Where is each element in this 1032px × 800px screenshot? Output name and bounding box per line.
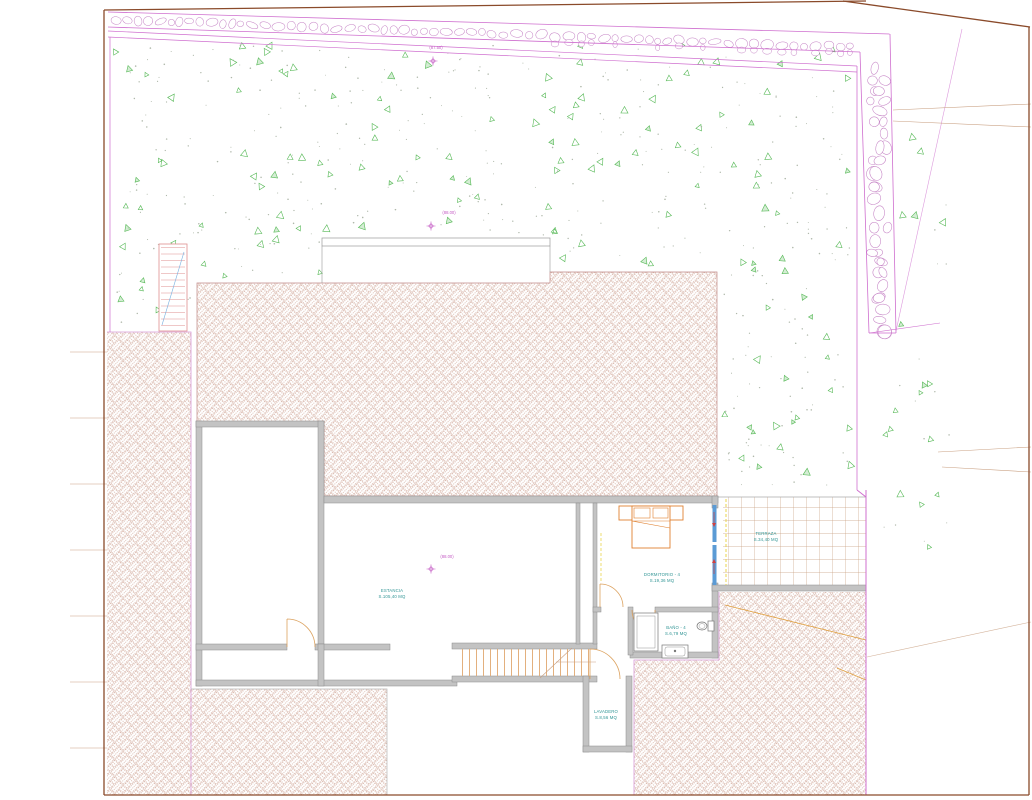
vegetation-triangle-icon [255, 57, 263, 65]
garden-dot [253, 46, 254, 47]
vegetation-triangle-icon [695, 183, 700, 188]
garden-dot [600, 223, 601, 224]
garden-dot [338, 106, 339, 107]
garden-dot [663, 246, 664, 247]
garden-dot [841, 154, 842, 155]
garden-dot [259, 89, 261, 91]
garden-dot [134, 98, 135, 99]
vegetation-triangle-icon [825, 355, 830, 360]
garden-dot [661, 149, 662, 150]
garden-dot [337, 133, 338, 134]
vegetation-triangle-icon [330, 92, 337, 98]
stone [380, 25, 389, 36]
garden-dot [364, 144, 365, 145]
garden-dot [234, 248, 235, 249]
garden-dot [771, 182, 772, 183]
stone [499, 32, 508, 38]
garden-dot [171, 51, 172, 52]
garden-dot [685, 150, 686, 151]
garden-dot [459, 206, 461, 208]
garden-dot [772, 299, 774, 301]
garden-dot [478, 70, 479, 71]
garden-dot [780, 378, 781, 379]
garden-dot [934, 229, 936, 231]
garden-dot [766, 283, 767, 284]
garden-dot [461, 116, 462, 117]
garden-dot [281, 50, 282, 51]
vegetation-triangle-icon [698, 58, 705, 64]
vegetation-triangle-icon [899, 211, 907, 218]
garden-dot [146, 126, 147, 127]
garden-dot [543, 234, 544, 235]
pillow-icon [653, 508, 668, 518]
garden-dot [153, 248, 155, 250]
garden-dot [769, 445, 770, 446]
stone [877, 74, 892, 87]
garden-dot [749, 466, 750, 467]
garden-dot [121, 321, 123, 323]
garden-dot [353, 222, 355, 224]
garden-dot [797, 165, 798, 166]
exterior-stair [159, 244, 187, 331]
garden-dot [570, 251, 571, 252]
garden-dot [147, 59, 148, 60]
vegetation-triangle-icon [887, 426, 893, 432]
elevation-marker-icon [427, 222, 436, 231]
stone [389, 25, 399, 35]
garden-dot [413, 190, 414, 191]
vegetation-triangle-icon [397, 175, 403, 181]
vegetation-triangle-icon [271, 171, 279, 178]
vegetation-triangle-icon [241, 149, 249, 157]
garden-dot [832, 253, 833, 254]
vegetation-triangle-icon [641, 256, 650, 264]
stone [873, 316, 886, 324]
garden-dot [557, 170, 558, 171]
garden-dot [725, 411, 726, 412]
garden-dot [806, 123, 807, 124]
garden-dot [193, 232, 194, 233]
right-witness-line [867, 622, 1031, 657]
garden-dot [577, 210, 578, 211]
garden-dot [722, 87, 723, 88]
garden-dot [748, 346, 749, 347]
stone [219, 19, 227, 29]
garden-dot [440, 224, 441, 225]
garden-dot [150, 47, 152, 49]
vegetation-triangle-icon [474, 193, 480, 199]
garden-dot [640, 79, 641, 80]
garden-dot [345, 123, 347, 125]
garden-dot [475, 88, 476, 89]
southeast-paving [634, 592, 866, 795]
vegetation-triangle-icon [770, 420, 780, 430]
stone [846, 43, 854, 50]
stone [454, 28, 465, 36]
vegetation-triangle-icon [844, 168, 850, 174]
garden-dot [749, 333, 750, 334]
garden-dot [466, 176, 467, 177]
garden-dot [217, 161, 218, 162]
garden-dot [623, 132, 624, 133]
wall-segment [315, 644, 390, 650]
vegetation-triangle-icon [445, 216, 453, 223]
garden-dot [748, 445, 749, 446]
garden-dot [327, 159, 329, 161]
garden-dot [188, 145, 189, 146]
garden-dot [137, 313, 138, 314]
garden-dot [638, 49, 639, 50]
stone [875, 304, 890, 315]
stone [866, 191, 883, 206]
wall-segment [593, 503, 597, 644]
vegetation-triangle-icon [317, 269, 323, 274]
garden-dot [275, 136, 276, 137]
garden-dot [335, 188, 337, 190]
vegetation-triangle-icon [649, 93, 659, 102]
garden-dot [790, 396, 791, 397]
garden-dot [351, 102, 352, 103]
garden-dot [147, 239, 148, 240]
garden-dot [143, 299, 144, 300]
wall-segment [583, 746, 632, 752]
vegetation-triangle-icon [530, 118, 539, 127]
vegetation-triangle-icon [645, 125, 652, 131]
garden-dot [518, 232, 519, 233]
garden-dot [225, 212, 227, 214]
stone [708, 38, 721, 45]
vegetation-triangle-icon [845, 424, 853, 431]
vegetation-triangle-icon [369, 122, 378, 130]
vegetation-triangle-icon [809, 313, 815, 319]
garden-dot [349, 90, 350, 91]
vegetation-triangle-icon [323, 224, 331, 231]
vegetation-triangle-icon [279, 68, 285, 74]
garden-dot [403, 183, 404, 184]
garden-dot [400, 90, 401, 91]
vegetation-triangle-icon [567, 112, 575, 120]
vegetation-triangle-icon [917, 147, 924, 154]
vegetation-triangle-icon [317, 160, 323, 166]
garden-dot [486, 150, 487, 151]
garden-dot [200, 72, 201, 73]
vegetation-triangle-icon [111, 47, 119, 55]
garden-dot [406, 139, 407, 140]
garden-dot [772, 141, 773, 142]
garden-dot [843, 452, 844, 453]
garden-dot [919, 358, 920, 359]
garden-dot [492, 45, 494, 47]
vegetation-triangle-icon [236, 87, 241, 92]
stone [824, 41, 834, 49]
garden-dot [416, 182, 417, 183]
stone [245, 20, 259, 30]
garden-dot [164, 64, 166, 66]
elevation-label: (87.50) [429, 45, 443, 50]
garden-dot [832, 106, 833, 107]
garden-dot [694, 144, 695, 145]
garden-dot [130, 72, 131, 73]
garden-dot [792, 247, 794, 249]
garden-dot [567, 238, 568, 239]
vegetation-triangle-icon [753, 182, 759, 188]
main-roof-hatch [197, 272, 717, 496]
garden-dot [816, 96, 817, 97]
vegetation-triangle-icon [578, 93, 587, 102]
stone [154, 16, 167, 26]
garden-dot [728, 459, 729, 460]
stone [411, 29, 418, 36]
vegetation-triangle-icon [755, 463, 762, 470]
stair-treads [457, 649, 593, 676]
garden-dot [626, 69, 628, 71]
vegetation-triangle-icon [761, 204, 769, 211]
garden-dot [797, 222, 798, 223]
wall-segment [452, 676, 597, 682]
vegetation-triangle-icon [414, 154, 420, 160]
vegetation-triangle-icon [257, 240, 265, 248]
stone [510, 29, 523, 38]
garden-dot [212, 49, 213, 50]
garden-dot [764, 226, 765, 227]
garden-dot [487, 163, 488, 164]
stone [133, 16, 142, 27]
stone [344, 23, 356, 32]
vegetation-triangle-icon [543, 72, 552, 81]
stone [613, 42, 617, 48]
garden-dot [823, 138, 825, 140]
garden-dot [812, 77, 813, 78]
parapet-wall [322, 238, 550, 246]
garden-dot [488, 95, 489, 96]
garden-dot [493, 161, 494, 162]
garden-dot [286, 65, 288, 67]
garden-dot [230, 151, 231, 152]
garden-dot [581, 234, 582, 235]
garden-dot [116, 291, 118, 293]
elevation-marker-icon [427, 565, 436, 574]
garden-dot [741, 484, 742, 485]
garden-dot [489, 97, 490, 98]
site-plan-drawing: (87.50) (88.00) (88.00) ESTANCIA S.105,4… [0, 0, 1032, 800]
garden-dot [665, 196, 666, 197]
cad-floor-plan-sheet: (87.50) (88.00) (88.00) ESTANCIA S.105,4… [0, 0, 1032, 800]
garden-dot [359, 138, 360, 139]
vegetation-triangle-icon [120, 242, 128, 250]
garden-dot [603, 119, 604, 120]
wall-segment [452, 643, 597, 649]
garden-dot [757, 270, 758, 271]
vegetation-triangle-icon [168, 92, 178, 101]
boundary-line [896, 29, 962, 331]
garden-dot [121, 273, 122, 274]
garden-dot [362, 217, 364, 219]
garden-dot [453, 70, 454, 71]
vegetation-triangle-icon [927, 435, 934, 441]
room-area: S.105,40 MQ [379, 594, 406, 599]
garden-dot [899, 385, 900, 386]
vegetation-triangle-icon [572, 102, 579, 108]
stone [286, 21, 296, 31]
garden-dot [384, 69, 385, 70]
vegetation-triangle-icon [552, 166, 560, 174]
window-divider [712, 542, 718, 545]
wall-segment [196, 644, 287, 650]
garden-dot [573, 247, 574, 248]
garden-dot [701, 126, 702, 127]
vegetation-triangle-icon [117, 296, 124, 302]
garden-dot [299, 93, 300, 94]
garden-dot [213, 195, 214, 196]
garden-dot [141, 120, 143, 122]
garden-dot [790, 198, 791, 199]
stone [174, 16, 184, 27]
vegetation-triangle-icon [803, 468, 811, 475]
garden-dot [260, 177, 261, 178]
vegetation-triangle-icon [571, 138, 579, 145]
vegetation-triangle-icon [920, 381, 928, 388]
garden-dot [408, 120, 409, 121]
garden-dot [658, 84, 659, 85]
vegetation-triangle-icon [465, 177, 474, 186]
garden-dot [710, 67, 711, 68]
vegetation-triangle-icon [387, 180, 393, 185]
garden-dot [501, 163, 502, 164]
garden-dot [479, 66, 480, 67]
garden-dot [198, 223, 200, 225]
room-name: TERRAZA [755, 531, 776, 536]
garden-dot [135, 65, 137, 67]
wall-segment [576, 503, 580, 644]
garden-dot [673, 245, 674, 246]
garden-dot [269, 243, 270, 244]
garden-dot [825, 207, 826, 208]
vegetation-triangle-icon [911, 211, 920, 219]
stone [168, 19, 175, 26]
garden-dot [812, 404, 813, 405]
garden-dot [535, 187, 536, 188]
garden-dot [274, 243, 276, 245]
stone [579, 41, 585, 47]
garden-dot [945, 204, 946, 205]
toilet-bowl-icon [699, 624, 705, 629]
garden-dot [819, 253, 821, 255]
vegetation-triangle-icon [139, 286, 144, 291]
garden-dot [166, 101, 167, 102]
garden-dot [783, 452, 784, 453]
garden-dot [396, 84, 397, 85]
garden-dot [832, 112, 833, 113]
garden-dot [268, 214, 269, 215]
shower-box-inner [637, 616, 655, 648]
garden-dot [781, 425, 782, 426]
garden-dot [305, 105, 306, 106]
stone [867, 75, 878, 85]
garden-dot [157, 81, 158, 82]
garden-dot [811, 409, 813, 411]
vegetation-triangle-icon [632, 149, 639, 155]
stone [398, 24, 410, 35]
vegetation-triangle-icon [558, 157, 564, 163]
stone [836, 42, 846, 51]
garden-dot [806, 288, 807, 289]
vegetation-triangle-icon [684, 69, 691, 75]
vegetation-triangle-icon [446, 153, 453, 160]
garden-dot [846, 227, 847, 228]
stone [621, 36, 633, 43]
garden-dot [307, 200, 308, 201]
garden-dot [308, 247, 309, 248]
wall-segment [324, 496, 718, 503]
garden-dot [239, 64, 240, 65]
stone [195, 17, 204, 27]
garden-dot [138, 81, 139, 82]
garden-dot [748, 439, 749, 440]
bed-furniture [619, 506, 683, 548]
wall-segment [712, 583, 718, 658]
room-area: S.8,56 MQ [595, 715, 617, 720]
garden-dot [241, 266, 242, 267]
vegetation-triangle-icon [782, 267, 789, 273]
garden-dot [190, 138, 191, 139]
garden-dot [805, 357, 806, 358]
stone [700, 44, 705, 50]
stone [654, 37, 662, 45]
vegetation-triangle-icon [739, 454, 747, 462]
stone [308, 21, 319, 32]
garden-dot [802, 328, 803, 329]
garden-dot [395, 209, 397, 211]
garden-dot [703, 166, 704, 167]
vegetation-triangle-icon [489, 116, 495, 122]
wall-segment [593, 607, 601, 612]
garden-dot [128, 228, 129, 229]
garden-dot [478, 201, 479, 202]
garden-dot [847, 254, 848, 255]
vegetation-triangle-icon [939, 217, 948, 226]
garden-dot [700, 172, 701, 173]
garden-dot [319, 146, 320, 147]
garden-dot [597, 153, 598, 154]
elevation-label: (88.00) [442, 210, 456, 215]
garden-dot [753, 247, 754, 248]
stone [478, 28, 485, 36]
garden-dot [808, 222, 809, 223]
vegetation-triangle-icon [134, 177, 140, 182]
garden-dot [826, 484, 827, 485]
border-top [104, 1, 866, 10]
vegetation-triangle-icon [199, 222, 204, 227]
garden-dot [483, 220, 484, 221]
stone [868, 116, 880, 128]
stone [800, 43, 807, 50]
stone [237, 21, 244, 27]
garden-dot [742, 315, 744, 317]
garden-dot [318, 241, 319, 242]
garden-dot [552, 147, 554, 149]
wall-segment [583, 676, 589, 752]
garden-dot [502, 219, 503, 220]
vegetation-triangle-icon [283, 70, 290, 77]
garden-dot [728, 453, 729, 454]
vegetation-triangle-icon [777, 59, 785, 66]
vegetation-triangle-icon [926, 544, 932, 550]
garden-dot [816, 189, 817, 190]
garden-dot [658, 211, 660, 213]
garden-dot [775, 95, 776, 96]
garden-dot [475, 130, 476, 131]
vegetation-triangle-icon [777, 443, 784, 450]
